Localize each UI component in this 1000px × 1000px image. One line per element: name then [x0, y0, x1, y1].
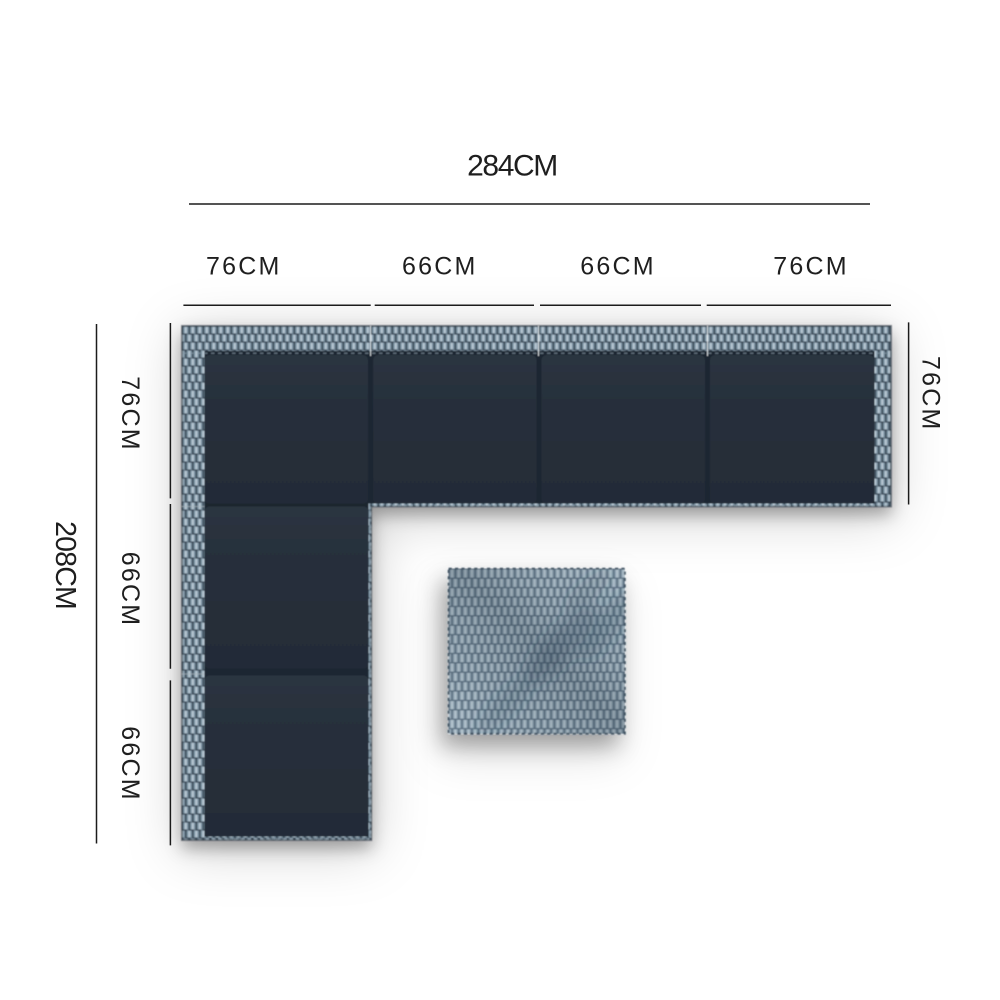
- svg-text:66CM: 66CM: [116, 726, 144, 802]
- svg-text:284CM: 284CM: [467, 150, 557, 183]
- svg-text:66CM: 66CM: [580, 253, 656, 281]
- svg-text:76CM: 76CM: [116, 376, 144, 452]
- svg-text:66CM: 66CM: [116, 552, 144, 628]
- svg-text:76CM: 76CM: [917, 356, 945, 432]
- svg-text:66CM: 66CM: [402, 253, 478, 281]
- svg-text:208CM: 208CM: [49, 521, 81, 609]
- svg-text:76CM: 76CM: [773, 253, 849, 281]
- svg-text:76CM: 76CM: [206, 253, 282, 281]
